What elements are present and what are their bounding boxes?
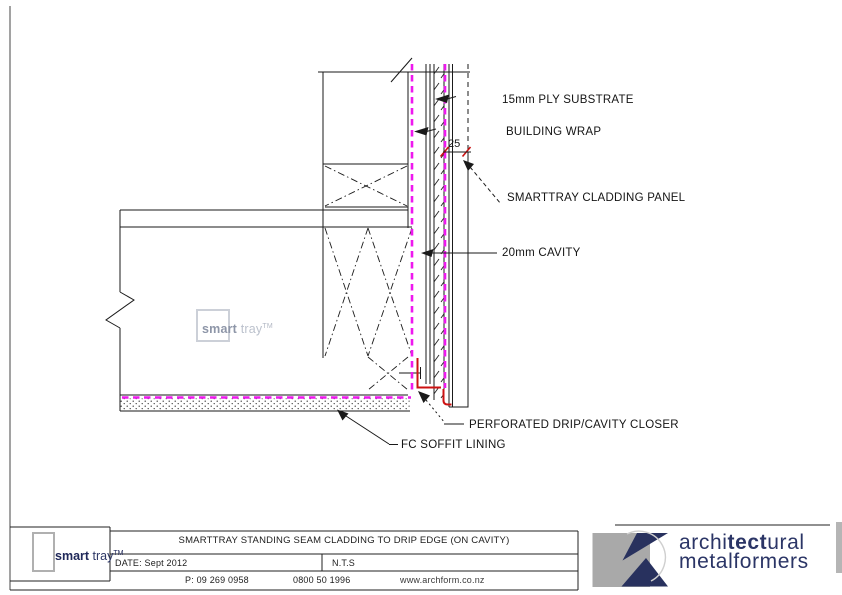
drawing-sheet: 15mm PLY SUBSTRATE BUILDING WRAP SMARTTR…	[0, 0, 842, 595]
framing-lines	[106, 58, 470, 411]
label-cladding-panel: SMARTTRAY CLADDING PANEL	[507, 192, 685, 204]
date-field: DATE: Sept 2012	[115, 558, 187, 568]
watermark-text: smart trayTM	[202, 322, 273, 336]
wrap-arrow	[414, 127, 429, 136]
freephone-field: 0800 50 1996	[293, 575, 350, 585]
ply-hatch	[435, 64, 445, 400]
cross-bracing-lines	[325, 166, 412, 390]
soffit-leader	[346, 416, 398, 445]
leader-lines	[337, 95, 501, 445]
am-logo-line2: metalformers	[679, 553, 809, 572]
drip-arrow	[418, 391, 430, 403]
label-soffit-lining: FC SOFFIT LINING	[401, 439, 506, 451]
smarttray-logo-text: smart trayTM	[55, 549, 123, 563]
label-ply-substrate: 15mm PLY SUBSTRATE	[502, 94, 634, 106]
website-field: www.archform.co.nz	[400, 575, 485, 585]
smarttray-logo-light: tray	[89, 549, 113, 563]
label-cavity: 20mm CAVITY	[502, 247, 581, 259]
scale-field: N.T.S	[332, 558, 355, 568]
soffit-stipple	[121, 399, 410, 411]
dimension-25-text: 25	[448, 138, 460, 150]
building-wrap-lines	[122, 64, 445, 398]
panel-leader	[470, 167, 501, 204]
watermark-brand-light: tray	[237, 322, 262, 336]
watermark-tm: TM	[262, 323, 273, 330]
am-logo-wordmark: architectural metalformers	[679, 534, 809, 571]
detail-linework	[0, 0, 842, 595]
label-drip-closer: PERFORATED DRIP/CAVITY CLOSER	[469, 419, 679, 431]
drip-leader	[426, 400, 445, 423]
watermark-brand-bold: smart	[202, 322, 237, 336]
smarttray-logo-square	[32, 532, 55, 572]
drawing-title: SMARTTRAY STANDING SEAM CLADDING TO DRIP…	[110, 535, 578, 546]
smarttray-logo-bold: smart	[55, 549, 89, 563]
phone-field: P: 09 269 0958	[185, 575, 249, 585]
wall-assembly-lines	[426, 64, 469, 407]
smarttray-logo-tm: TM	[113, 550, 123, 557]
label-building-wrap: BUILDING WRAP	[506, 126, 601, 138]
